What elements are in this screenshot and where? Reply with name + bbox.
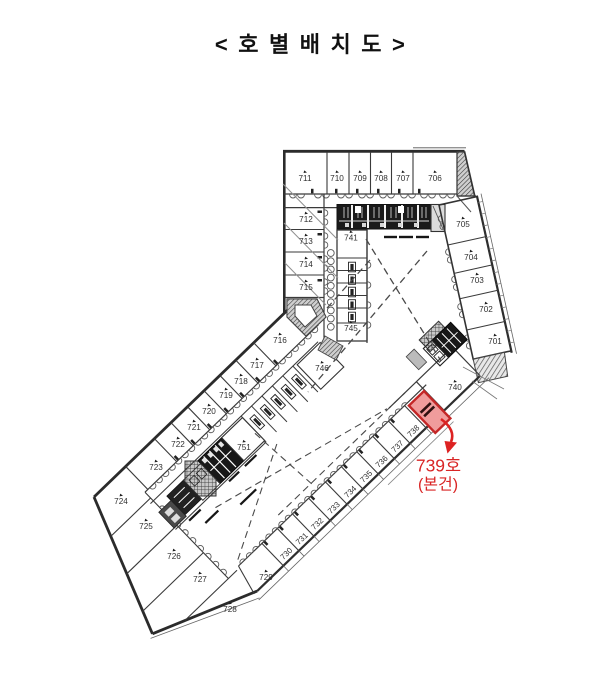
svg-text:707: 707: [396, 174, 410, 183]
svg-text:705: 705: [456, 220, 470, 229]
svg-text:704: 704: [464, 253, 478, 262]
svg-text:723: 723: [149, 463, 163, 472]
svg-text:718: 718: [234, 377, 248, 386]
svg-text:727: 727: [193, 575, 207, 584]
svg-text:715: 715: [299, 283, 313, 292]
svg-text:751: 751: [237, 443, 251, 452]
svg-text:(본건): (본건): [418, 476, 458, 494]
svg-text:703: 703: [470, 276, 484, 285]
svg-text:741: 741: [344, 234, 358, 243]
svg-text:729: 729: [259, 573, 273, 582]
svg-text:719: 719: [219, 391, 233, 400]
svg-text:706: 706: [428, 174, 442, 183]
svg-text:710: 710: [330, 174, 344, 183]
svg-text:745: 745: [344, 324, 358, 333]
svg-text:702: 702: [479, 305, 493, 314]
svg-text:725: 725: [139, 522, 153, 531]
svg-text:716: 716: [273, 336, 287, 345]
svg-text:728: 728: [223, 605, 237, 614]
svg-text:740: 740: [448, 383, 462, 392]
svg-text:721: 721: [187, 423, 201, 432]
svg-text:720: 720: [202, 407, 216, 416]
svg-text:739호: 739호: [416, 456, 461, 476]
svg-text:726: 726: [167, 552, 181, 561]
svg-text:712: 712: [299, 215, 313, 224]
svg-text:713: 713: [299, 237, 313, 246]
svg-text:701: 701: [488, 337, 502, 346]
svg-text:746: 746: [315, 364, 329, 373]
svg-text:708: 708: [374, 174, 388, 183]
svg-text:714: 714: [299, 260, 313, 269]
svg-text:722: 722: [171, 440, 185, 449]
svg-text:< 호 별 배 치 도 >: < 호 별 배 치 도 >: [215, 32, 407, 57]
svg-text:717: 717: [250, 361, 264, 370]
svg-text:724: 724: [114, 497, 128, 506]
svg-text:709: 709: [353, 174, 367, 183]
svg-text:711: 711: [298, 174, 311, 183]
